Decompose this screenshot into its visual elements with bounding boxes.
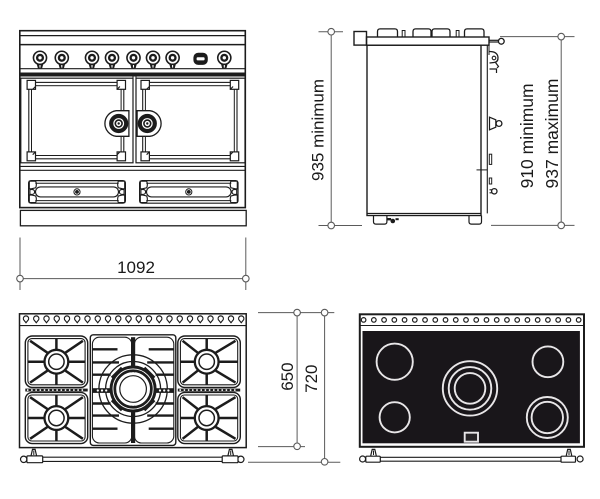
svg-text:650: 650 xyxy=(278,362,297,390)
svg-text:720: 720 xyxy=(302,365,321,393)
svg-text:937 maximum: 937 maximum xyxy=(542,79,562,189)
svg-text:910 minimum: 910 minimum xyxy=(517,83,537,188)
svg-text:1092: 1092 xyxy=(117,258,155,277)
svg-text:935 minimum: 935 minimum xyxy=(308,79,327,181)
